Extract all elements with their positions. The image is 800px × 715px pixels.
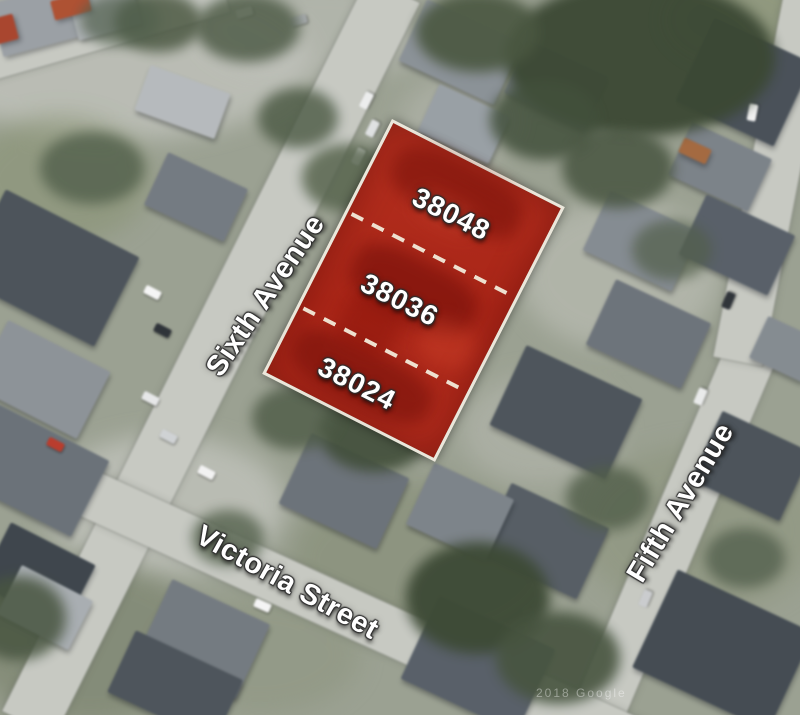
tree-canopy [632, 220, 712, 280]
tree-canopy [562, 128, 674, 208]
car [365, 119, 381, 138]
tree-canopy [705, 528, 785, 588]
car [141, 391, 160, 407]
house-roof [144, 152, 248, 242]
imagery-watermark: 2018 Google [536, 686, 627, 700]
tree-canopy [258, 88, 338, 148]
tree-canopy [566, 466, 650, 530]
car [143, 285, 162, 301]
tree-canopy [40, 132, 144, 204]
car [153, 323, 172, 339]
satellite-map: 2018 Google 38048 38036 38024 Sixth Aven… [0, 0, 800, 715]
